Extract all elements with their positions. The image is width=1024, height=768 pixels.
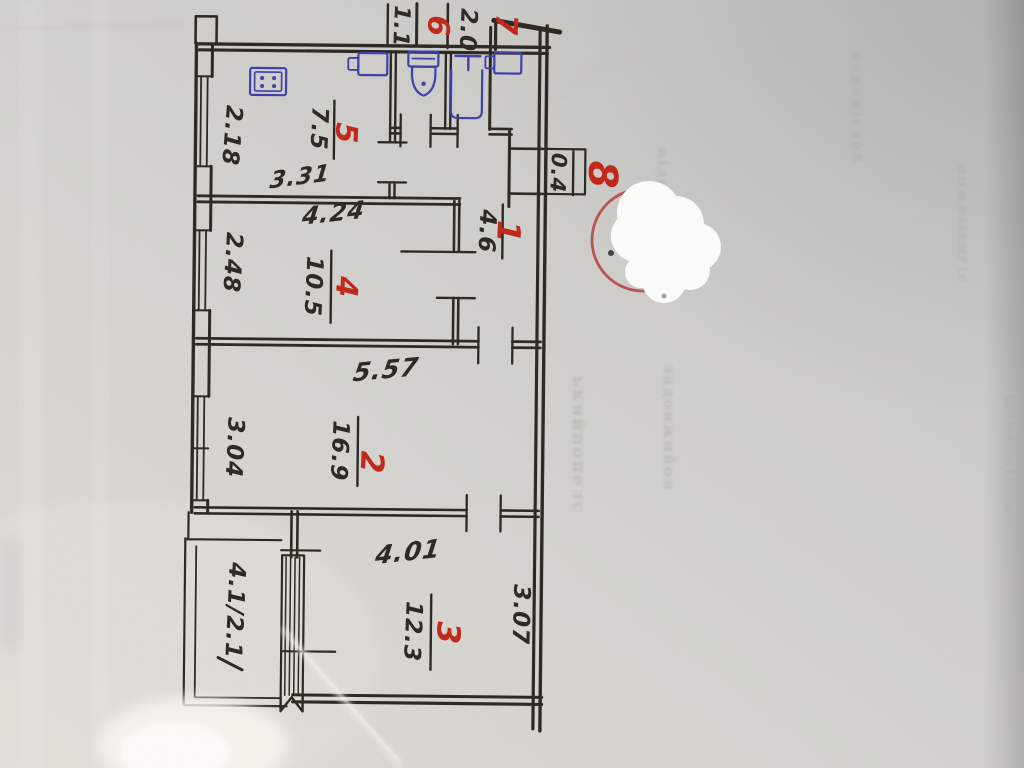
photo-of-floorplan-page: ькнйпопелс віднокідлн задовжнйоя нкповіс…: [0, 0, 1024, 768]
paper-grain: [0, 0, 1024, 768]
